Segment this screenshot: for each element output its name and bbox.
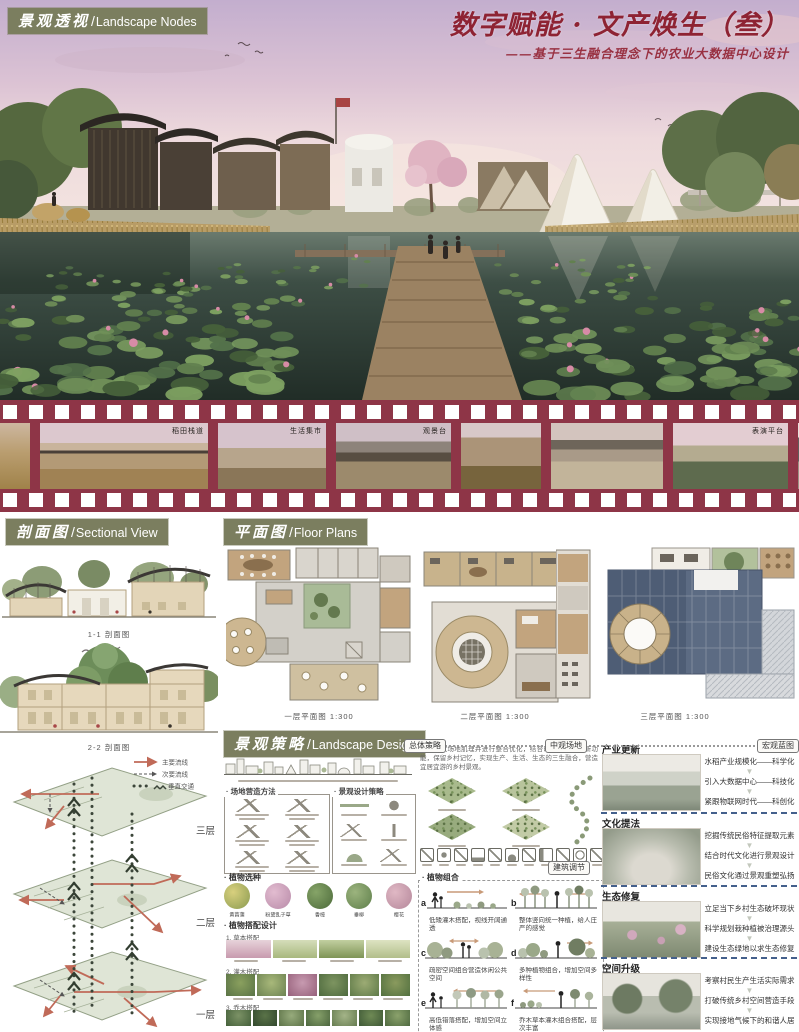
element-icon <box>471 848 485 868</box>
filmstrip-frame: 表演平台 <box>673 423 788 489</box>
sketch-cell <box>335 822 374 846</box>
section-label-en: Landscape Nodes <box>96 15 197 29</box>
plant-photo <box>226 1010 251 1026</box>
tag-building-adjust: 建筑调节 <box>548 861 590 875</box>
plant-photo <box>359 1010 384 1026</box>
filmstrip-frame: 稻田栈道 <box>40 423 208 489</box>
axonometric-circulation-diagram: 主要流线 次要流线 垂直交通 三层 二层 一层 <box>4 754 218 1032</box>
hdr-en: Sectional View <box>76 526 158 540</box>
skyline-caption-lines <box>226 778 410 784</box>
iso-module-1 <box>428 778 476 804</box>
down-arrow-icon: ▼ <box>702 934 797 943</box>
filmstrip-sprockets-top <box>3 405 796 419</box>
plan2-caption: 二层平面图 1:300 <box>420 711 570 722</box>
plant-combo-title: 植物组合 <box>420 872 461 883</box>
element-icon <box>488 848 502 868</box>
panel-site-methods <box>224 794 330 874</box>
sketch-cell <box>278 849 328 874</box>
element-icon <box>522 848 536 868</box>
plant-item: 香樟 <box>307 883 333 919</box>
block-photo-space <box>602 973 701 1030</box>
sketch-cell <box>375 797 414 821</box>
section-drawing-2 <box>0 640 218 740</box>
element-icon <box>437 848 451 868</box>
filmstrip-sprockets-bottom <box>3 493 796 507</box>
combo-item-c: c 疏密空间组合营造休闲公共空间 <box>421 934 509 982</box>
down-arrow-icon: ▼ <box>702 986 797 995</box>
plant-combination-panel: a 低矮灌木搭配，视线开阔通透 b <box>418 880 604 1032</box>
poster-subtitle: ——基于三生融合理念下的农业大数据中心设计 <box>450 43 789 62</box>
strategy-tag-meso: 中观场地 <box>545 739 587 753</box>
filmstrip-frame <box>551 423 663 489</box>
svg-text:次要流线: 次要流线 <box>162 770 189 779</box>
combo-item-f: f 乔木草本灌木组合搭配，层次丰富 <box>511 984 599 1032</box>
row1-captions <box>226 960 410 962</box>
down-arrow-icon: ▼ <box>702 767 797 776</box>
hero-rendering: 景观透视/Landscape Nodes 数字赋能 · 文产焕生（叁） ——基于… <box>0 0 799 400</box>
hdr-zh: 景观策略 <box>234 735 306 753</box>
header-floor-plans: 平面图/Floor Plans <box>224 519 367 545</box>
plant-photo <box>226 940 271 958</box>
plant-photo <box>319 974 348 996</box>
sketch-cell <box>278 797 328 822</box>
plant-photo <box>288 974 317 996</box>
down-arrow-icon: ▼ <box>702 861 797 870</box>
sketch-cell <box>227 849 277 874</box>
plant-photo <box>319 940 364 958</box>
dashed-separator <box>601 957 797 959</box>
plant-select-row: 黄菖蒲 粉黛乱子草 香樟 垂柳 樱花 <box>224 883 412 919</box>
slash: / <box>289 524 293 540</box>
combo-item-b: b 整体竖向统一种植，给人庄严的感觉 <box>511 884 599 932</box>
svg-text:垂直交通: 垂直交通 <box>168 782 195 791</box>
section-label-zh: 景观透视 <box>18 12 90 30</box>
iso-module-2 <box>502 778 550 804</box>
svg-text:一层: 一层 <box>196 1010 215 1021</box>
header-sectional-view: 剖面图/Sectional View <box>6 519 168 545</box>
plant-photo <box>381 974 410 996</box>
plan3-caption: 三层平面图 1:300 <box>590 711 760 722</box>
plant-photo <box>253 1010 278 1026</box>
plant-photo <box>385 1010 410 1026</box>
filmstrip-frame: 生活集市 <box>218 423 326 489</box>
dashed-separator <box>601 885 797 887</box>
shrub-strip <box>226 974 410 996</box>
poster-title-block: 数字赋能 · 文产焕生（叁） ——基于三生融合理念下的农业大数据中心设计 <box>450 3 789 62</box>
plant-design-title: 植物搭配设计 <box>224 920 277 931</box>
strategy-connector <box>400 745 795 747</box>
slash: / <box>71 524 75 540</box>
frame-label: 稻田栈道 <box>172 426 204 436</box>
plant-photo <box>332 1010 357 1026</box>
sketch-cell <box>375 822 414 846</box>
plant-item: 垂柳 <box>346 883 372 919</box>
section2-caption: 2-2 剖面图 <box>0 742 218 753</box>
iso-caption <box>438 809 466 811</box>
plant-photo <box>226 974 255 996</box>
floor-plan-1 <box>226 546 412 706</box>
tree-strip <box>226 1010 410 1026</box>
frame-label: 生活集市 <box>290 426 322 436</box>
plant-photo <box>306 1010 331 1026</box>
down-arrow-icon: ▼ <box>702 787 797 796</box>
block-photo-industry <box>602 754 701 811</box>
poster-title: 数字赋能 · 文产焕生（叁） <box>450 3 789 42</box>
element-icon <box>505 848 519 868</box>
combo-item-a: a 低矮灌木搭配，视线开阔通透 <box>421 884 509 932</box>
plant-photo <box>366 940 411 958</box>
iso-caption <box>438 845 466 847</box>
block-text-space: 考察村民生产生活实际需求▼ 打破传统乡村空间营造手段▼ 实现接地气候下的和谐人居 <box>702 975 797 1026</box>
sketch-cell <box>335 847 374 871</box>
iso-caption <box>512 845 540 847</box>
sketch-cell <box>335 797 374 821</box>
frame-label: 表演平台 <box>752 426 784 436</box>
down-arrow-icon: ▼ <box>702 1006 797 1015</box>
frame-label: 观景台 <box>423 426 447 436</box>
section-drawing-1 <box>2 546 216 628</box>
combo-item-e: e 高低错落搭配，增加空间立体感 <box>421 984 509 1032</box>
floor-plan-2 <box>420 550 570 706</box>
row2-captions <box>226 998 410 1000</box>
plan1-caption: 一层平面图 1:300 <box>226 711 412 722</box>
down-arrow-icon: ▼ <box>702 914 797 923</box>
block-text-ecology: 立足当下乡村生态破坏现状▼ 科学规划栽种植被治理源头▼ 建设生态绿地以求生态修复 <box>702 903 797 954</box>
plant-select-title: 植物选种 <box>224 872 261 883</box>
dashed-separator <box>601 812 797 814</box>
filmstrip-frame <box>461 423 541 489</box>
element-icon <box>454 848 468 868</box>
filmstrip-frames: 稻田栈道 生活集市 观景台 表演平台 <box>0 423 799 489</box>
herb-strip <box>226 940 410 958</box>
section1-caption: 1-1 剖面图 <box>2 629 216 640</box>
plant-item: 樱花 <box>386 883 412 919</box>
filmstrip: 稻田栈道 生活集市 观景台 表演平台 <box>0 400 799 512</box>
iso-module-3 <box>428 814 476 840</box>
section-label-landscape-nodes: 景观透视/Landscape Nodes <box>8 8 207 34</box>
sketch-cell <box>227 823 277 848</box>
filmstrip-frame <box>0 423 30 489</box>
plant-item: 粉黛乱子草 <box>263 883 293 919</box>
sketch-cell <box>227 797 277 822</box>
svg-text:二层: 二层 <box>196 918 215 929</box>
strategy-tag-overall: 总体策略 <box>404 739 446 753</box>
plant-photo <box>350 974 379 996</box>
block-text-industry: 水稻产业规模化——科学化▼ 引入大数据中心——科技化▼ 紧跟物联网时代——科创化 <box>702 756 797 807</box>
plant-photo <box>273 940 318 958</box>
hdr-en: Floor Plans <box>294 526 357 540</box>
iso-caption <box>512 809 540 811</box>
down-arrow-icon: ▼ <box>702 841 797 850</box>
combo-item-d: d 多种植物组合，增加空间多样性 <box>511 934 599 982</box>
panel-a-title: 场地营造方法 <box>224 786 278 797</box>
slash: / <box>307 736 311 752</box>
plant-photo <box>279 1010 304 1026</box>
element-icon <box>420 848 434 868</box>
panel-b-title: 景观设计策略 <box>332 786 386 797</box>
hdr-zh: 剖面图 <box>16 523 70 541</box>
plant-item: 黄菖蒲 <box>224 883 250 919</box>
iso-module-4 <box>502 814 550 840</box>
panel-design-strategies <box>332 794 416 874</box>
block-photo-culture <box>602 828 701 885</box>
block-photo-ecology <box>602 901 701 958</box>
plant-photo <box>257 974 286 996</box>
block-text-culture: 挖掘传统民俗特征提取元素▼ 结合时代文化进行景观设计▼ 民俗文化通过景观重塑弘扬 <box>702 830 797 881</box>
winding-path-diagram <box>560 774 596 852</box>
sketch-cell <box>278 823 328 848</box>
svg-text:三层: 三层 <box>196 826 215 837</box>
strategy-tag-macro: 宏观蓝图 <box>757 739 799 753</box>
hdr-zh: 平面图 <box>234 523 288 541</box>
slash: / <box>91 13 95 29</box>
village-skyline-sketch <box>224 754 412 778</box>
svg-text:主要流线: 主要流线 <box>162 758 189 767</box>
floor-plan-3 <box>556 546 796 706</box>
presentation-board: 景观透视/Landscape Nodes 数字赋能 · 文产焕生（叁） ——基于… <box>0 0 799 1032</box>
filmstrip-frame: 观景台 <box>336 423 451 489</box>
sketch-cell <box>375 847 414 871</box>
